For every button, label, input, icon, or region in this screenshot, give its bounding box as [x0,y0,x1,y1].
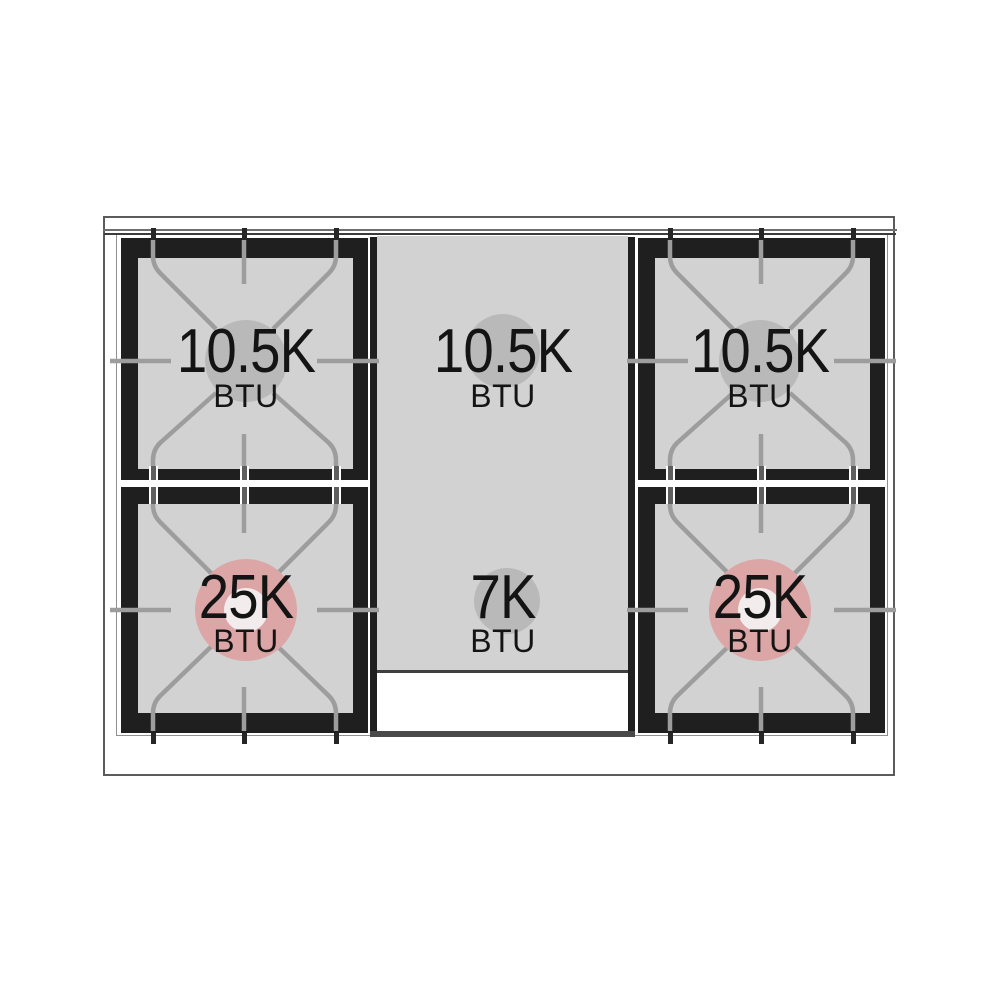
burner-unit-right-rear: BTU [640,378,880,414]
grate-foot-tick [151,733,156,744]
burner-value-right-front: 25K [654,566,865,630]
grate-foot-tick [242,228,247,240]
burner-value-left-front: 25K [140,566,351,630]
griddle-front-edge [370,731,635,737]
burner-unit-left-front: BTU [126,623,366,659]
burner-unit-right-front: BTU [640,623,880,659]
burner-unit-center-rear: BTU [383,378,623,414]
grate-foot-tick [334,733,339,744]
burner-unit-left-rear: BTU [126,378,366,414]
griddle-front-panel [377,673,628,731]
plate-gap-line [119,480,370,487]
grate-foot-tick [851,733,856,744]
grate-foot-tick [151,228,156,240]
burner-value-right-rear: 10.5K [654,320,865,384]
plate-gap-line [636,480,886,487]
burner-unit-center-front: BTU [383,623,623,659]
burner-value-left-rear: 10.5K [140,320,351,384]
burner-value-center-rear: 10.5K [397,320,608,384]
grate-foot-tick [759,733,764,744]
burner-value-center-front: 7K [397,566,608,630]
cooktop-diagram: 10.5K BTU 10.5K BTU 10.5K BTU 25K BTU 7K… [0,0,1000,1000]
grate-foot-tick [668,228,673,240]
grate-foot-tick [242,733,247,744]
grate-foot-tick [334,228,339,240]
grate-foot-tick [851,228,856,240]
grate-foot-tick [668,733,673,744]
grate-foot-tick [759,228,764,240]
